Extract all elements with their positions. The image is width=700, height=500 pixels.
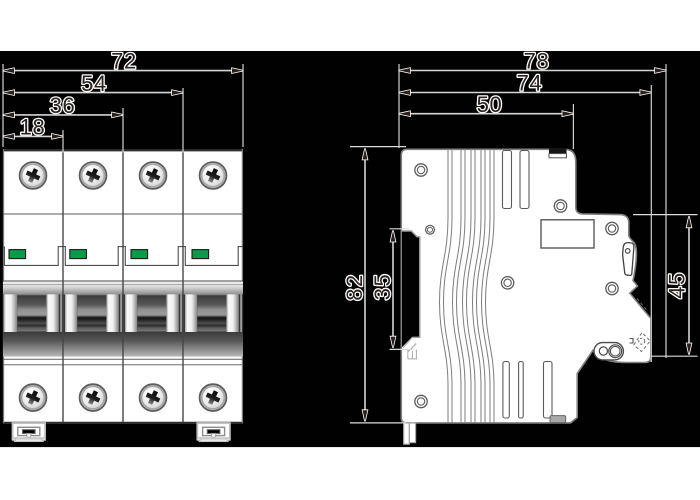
svg-text:45: 45 <box>665 271 690 298</box>
svg-text:50: 50 <box>477 92 503 117</box>
svg-text:82: 82 <box>342 273 367 300</box>
svg-text:74: 74 <box>517 71 543 96</box>
svg-text:36: 36 <box>50 93 76 118</box>
svg-text:18: 18 <box>20 115 46 140</box>
svg-text:54: 54 <box>81 71 107 96</box>
svg-text:72: 72 <box>111 49 137 74</box>
svg-text:35: 35 <box>370 273 395 300</box>
